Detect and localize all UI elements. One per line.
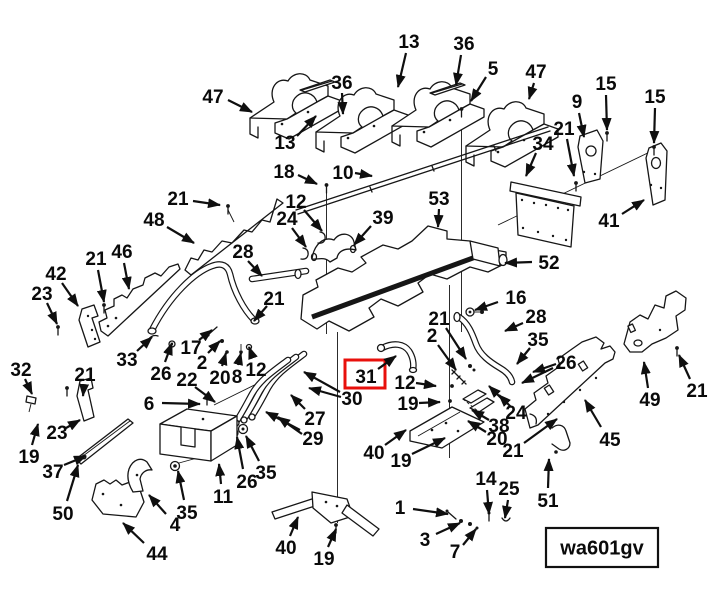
callout-arrow-26 <box>237 437 243 469</box>
callout-2-54[interactable]: 2 <box>427 326 438 347</box>
callout-34-12[interactable]: 34 <box>532 134 554 155</box>
callout-arrow-21 <box>83 385 84 396</box>
callout-arrow-47 <box>529 83 534 99</box>
callout-arrow-41 <box>622 200 644 214</box>
callout-21-21[interactable]: 21 <box>167 189 189 210</box>
callout-arrow-21 <box>446 328 466 359</box>
callout-35-46[interactable]: 35 <box>176 503 198 524</box>
fasteners-1-3-7-14-25 <box>446 510 511 530</box>
strip-48 <box>185 199 283 275</box>
callout-arrow-12 <box>304 210 322 231</box>
callout-arrow-21 <box>567 139 574 176</box>
callout-13-5[interactable]: 13 <box>398 32 419 53</box>
callout-arrow-39 <box>354 226 371 245</box>
callout-31-58[interactable]: 31 <box>355 367 377 388</box>
callout-19-41[interactable]: 19 <box>18 447 39 468</box>
callout-37-42[interactable]: 37 <box>42 462 63 483</box>
callout-arrow-3 <box>436 523 460 534</box>
callout-8-34[interactable]: 8 <box>232 367 243 388</box>
callout-1-75[interactable]: 1 <box>395 498 406 519</box>
callout-41-14[interactable]: 41 <box>598 211 620 232</box>
callout-arrow-15 <box>606 95 607 130</box>
callout-arrow-48 <box>167 227 194 243</box>
callout-13-2[interactable]: 13 <box>274 133 295 154</box>
callout-arrow-25 <box>505 500 508 518</box>
parts-diagram-page: 4736131810133654791515342141122439535248… <box>0 0 721 600</box>
callout-arrow-51 <box>548 459 549 488</box>
callout-21-13[interactable]: 21 <box>553 119 575 140</box>
callout-arrow-11 <box>219 464 221 484</box>
plate-34 <box>510 182 581 247</box>
bolt-15-left <box>605 131 609 141</box>
callout-28-55[interactable]: 28 <box>525 307 546 328</box>
callout-15-11[interactable]: 15 <box>644 87 666 108</box>
callout-35-48[interactable]: 35 <box>255 463 277 484</box>
callout-arrow-23 <box>66 420 80 428</box>
callout-3-76[interactable]: 3 <box>420 530 431 551</box>
callout-11-49[interactable]: 11 <box>213 487 234 508</box>
callout-arrow-21 <box>98 270 104 302</box>
callout-arrow-15 <box>654 108 655 143</box>
callout-arrow-29 <box>278 417 302 434</box>
callout-9-9[interactable]: 9 <box>572 92 583 113</box>
callout-12-35[interactable]: 12 <box>245 360 266 381</box>
callout-26-47[interactable]: 26 <box>236 472 257 493</box>
callout-28-22[interactable]: 28 <box>232 242 253 263</box>
callout-40-65[interactable]: 40 <box>363 443 384 464</box>
callout-arrow-44 <box>123 523 144 543</box>
callout-21-69[interactable]: 21 <box>686 381 708 402</box>
callout-arrow-4 <box>149 495 166 514</box>
clip-32 <box>26 396 36 404</box>
plate-15-41 <box>646 143 667 205</box>
bracket-42 <box>56 303 106 347</box>
callout-arrow-10 <box>355 173 372 176</box>
callout-arrow-19 <box>419 402 440 403</box>
callout-arrow-42 <box>62 283 78 306</box>
callout-arrow-21 <box>679 355 690 379</box>
bolt-18 <box>325 183 329 193</box>
callout-7-77[interactable]: 7 <box>450 542 461 563</box>
callout-arrow-28 <box>505 323 523 331</box>
callout-36-1[interactable]: 36 <box>331 73 352 94</box>
callout-53-18[interactable]: 53 <box>428 189 449 210</box>
callout-29-51[interactable]: 29 <box>302 429 323 450</box>
callout-18-3[interactable]: 18 <box>273 162 294 183</box>
callout-arrow-35 <box>246 436 259 461</box>
callout-arrow-46 <box>124 263 129 289</box>
callout-arrow-9 <box>579 113 584 137</box>
callout-45-67[interactable]: 45 <box>599 430 621 451</box>
bracket-51 <box>552 425 570 454</box>
callout-arrow-14 <box>487 490 489 514</box>
callout-arrow-19 <box>32 424 38 445</box>
callout-arrow-49 <box>644 362 648 388</box>
bolt-19-right <box>448 399 452 403</box>
callout-49-68[interactable]: 49 <box>639 390 660 411</box>
callout-27-50[interactable]: 27 <box>304 409 325 430</box>
callout-26-57[interactable]: 26 <box>555 353 576 374</box>
callout-14-73[interactable]: 14 <box>475 469 497 490</box>
callout-arrow-34 <box>526 153 536 176</box>
callout-23-26[interactable]: 23 <box>31 284 52 305</box>
callout-25-74[interactable]: 25 <box>498 479 520 500</box>
callout-40-71[interactable]: 40 <box>275 538 296 559</box>
clip-32-tail <box>29 404 31 412</box>
callout-23-40[interactable]: 23 <box>46 423 67 444</box>
callout-arrow-6 <box>162 403 200 404</box>
callout-arrow-31 <box>378 356 396 369</box>
bracket-4 <box>128 459 152 492</box>
callout-arrow-36 <box>456 55 461 85</box>
panel-40-right <box>410 407 484 448</box>
callout-arrow-27 <box>291 395 305 409</box>
callout-19-60[interactable]: 19 <box>397 394 418 415</box>
callout-19-66[interactable]: 19 <box>390 451 411 472</box>
callout-39-17[interactable]: 39 <box>372 208 393 229</box>
callout-47-8[interactable]: 47 <box>525 62 546 83</box>
callout-arrow-52 <box>505 262 532 263</box>
callout-arrow-26 <box>165 343 172 362</box>
callout-arrow-47 <box>228 100 252 112</box>
callout-48-20[interactable]: 48 <box>143 210 164 231</box>
callout-47-0[interactable]: 47 <box>202 87 223 108</box>
callout-arrow-2 <box>208 341 220 353</box>
callout-arrow-40 <box>385 430 406 445</box>
callout-21-27[interactable]: 21 <box>263 289 285 310</box>
callout-22-36[interactable]: 22 <box>176 370 197 391</box>
callout-44-44[interactable]: 44 <box>146 544 168 565</box>
callout-arrow-1 <box>413 509 448 514</box>
callout-50-43[interactable]: 50 <box>52 504 73 525</box>
callout-arrow-5 <box>471 77 486 101</box>
callout-arrow-19 <box>328 529 336 547</box>
callout-20-33[interactable]: 20 <box>209 368 230 389</box>
hose-31 <box>378 344 417 372</box>
bracket-49 <box>624 291 686 356</box>
callout-46-23[interactable]: 46 <box>111 242 132 263</box>
callout-15-10[interactable]: 15 <box>595 74 617 95</box>
callout-arrow-12 <box>416 383 436 386</box>
callout-arrow-32 <box>25 379 32 394</box>
elbow-39 <box>312 234 357 262</box>
callout-arrow-23 <box>47 303 57 324</box>
callout-5-7[interactable]: 5 <box>488 59 499 80</box>
callout-arrow-2 <box>438 345 456 370</box>
callout-32-39[interactable]: 32 <box>10 360 31 381</box>
callout-21-24[interactable]: 21 <box>85 249 107 270</box>
callout-21-64[interactable]: 21 <box>502 441 524 462</box>
callout-arrow-18 <box>298 175 317 184</box>
bolt-12-right <box>450 384 454 388</box>
callout-42-25[interactable]: 42 <box>45 264 66 285</box>
callout-52-19[interactable]: 52 <box>538 253 559 274</box>
figure-code-label: wa601gv <box>559 538 644 560</box>
callout-33-29[interactable]: 33 <box>116 350 137 371</box>
callout-arrow-50 <box>67 465 78 501</box>
callout-arrow-8 <box>238 353 241 365</box>
callout-21-38[interactable]: 21 <box>74 365 96 386</box>
callout-arrow-35 <box>178 471 184 500</box>
callout-30-52[interactable]: 30 <box>341 389 362 410</box>
callout-arrow-53 <box>438 209 439 227</box>
callout-26-30[interactable]: 26 <box>150 364 171 385</box>
callout-arrow-24 <box>292 228 306 247</box>
bracket-38-20 <box>463 390 494 412</box>
callout-arrow-13 <box>398 53 406 87</box>
callout-arrow-40 <box>290 517 298 536</box>
callout-16-28[interactable]: 16 <box>505 288 526 309</box>
washer-35-left <box>171 462 180 471</box>
plate-9 <box>578 130 603 183</box>
callout-arrow-33 <box>137 337 152 351</box>
callout-arrow-36 <box>342 93 343 114</box>
callout-51-70[interactable]: 51 <box>537 491 559 512</box>
hose-28-right <box>452 313 512 385</box>
callout-arrow-22 <box>195 387 215 402</box>
callout-10-4[interactable]: 10 <box>332 163 353 184</box>
callout-arrow-45 <box>585 400 601 427</box>
v-bracket-40 <box>272 492 379 536</box>
callout-arrow-28 <box>248 261 262 276</box>
callout-arrow-21 <box>193 201 220 205</box>
exploded-view-diagram: 4736131810133654791515342141122439535248… <box>0 0 721 600</box>
callout-arrow-16 <box>475 302 498 310</box>
callout-12-59[interactable]: 12 <box>394 373 415 394</box>
clip-24 <box>301 248 308 259</box>
callout-arrow-7 <box>463 529 476 545</box>
callout-19-72[interactable]: 19 <box>313 549 334 570</box>
exploded-parts-art <box>26 74 686 536</box>
callout-2-32[interactable]: 2 <box>197 353 208 374</box>
bolt-21-top <box>574 181 578 191</box>
callout-6-37[interactable]: 6 <box>144 394 155 415</box>
callout-arrow-20 <box>222 353 226 366</box>
callout-36-6[interactable]: 36 <box>453 34 474 55</box>
callout-35-56[interactable]: 35 <box>527 330 549 351</box>
callout-24-16[interactable]: 24 <box>276 209 298 230</box>
